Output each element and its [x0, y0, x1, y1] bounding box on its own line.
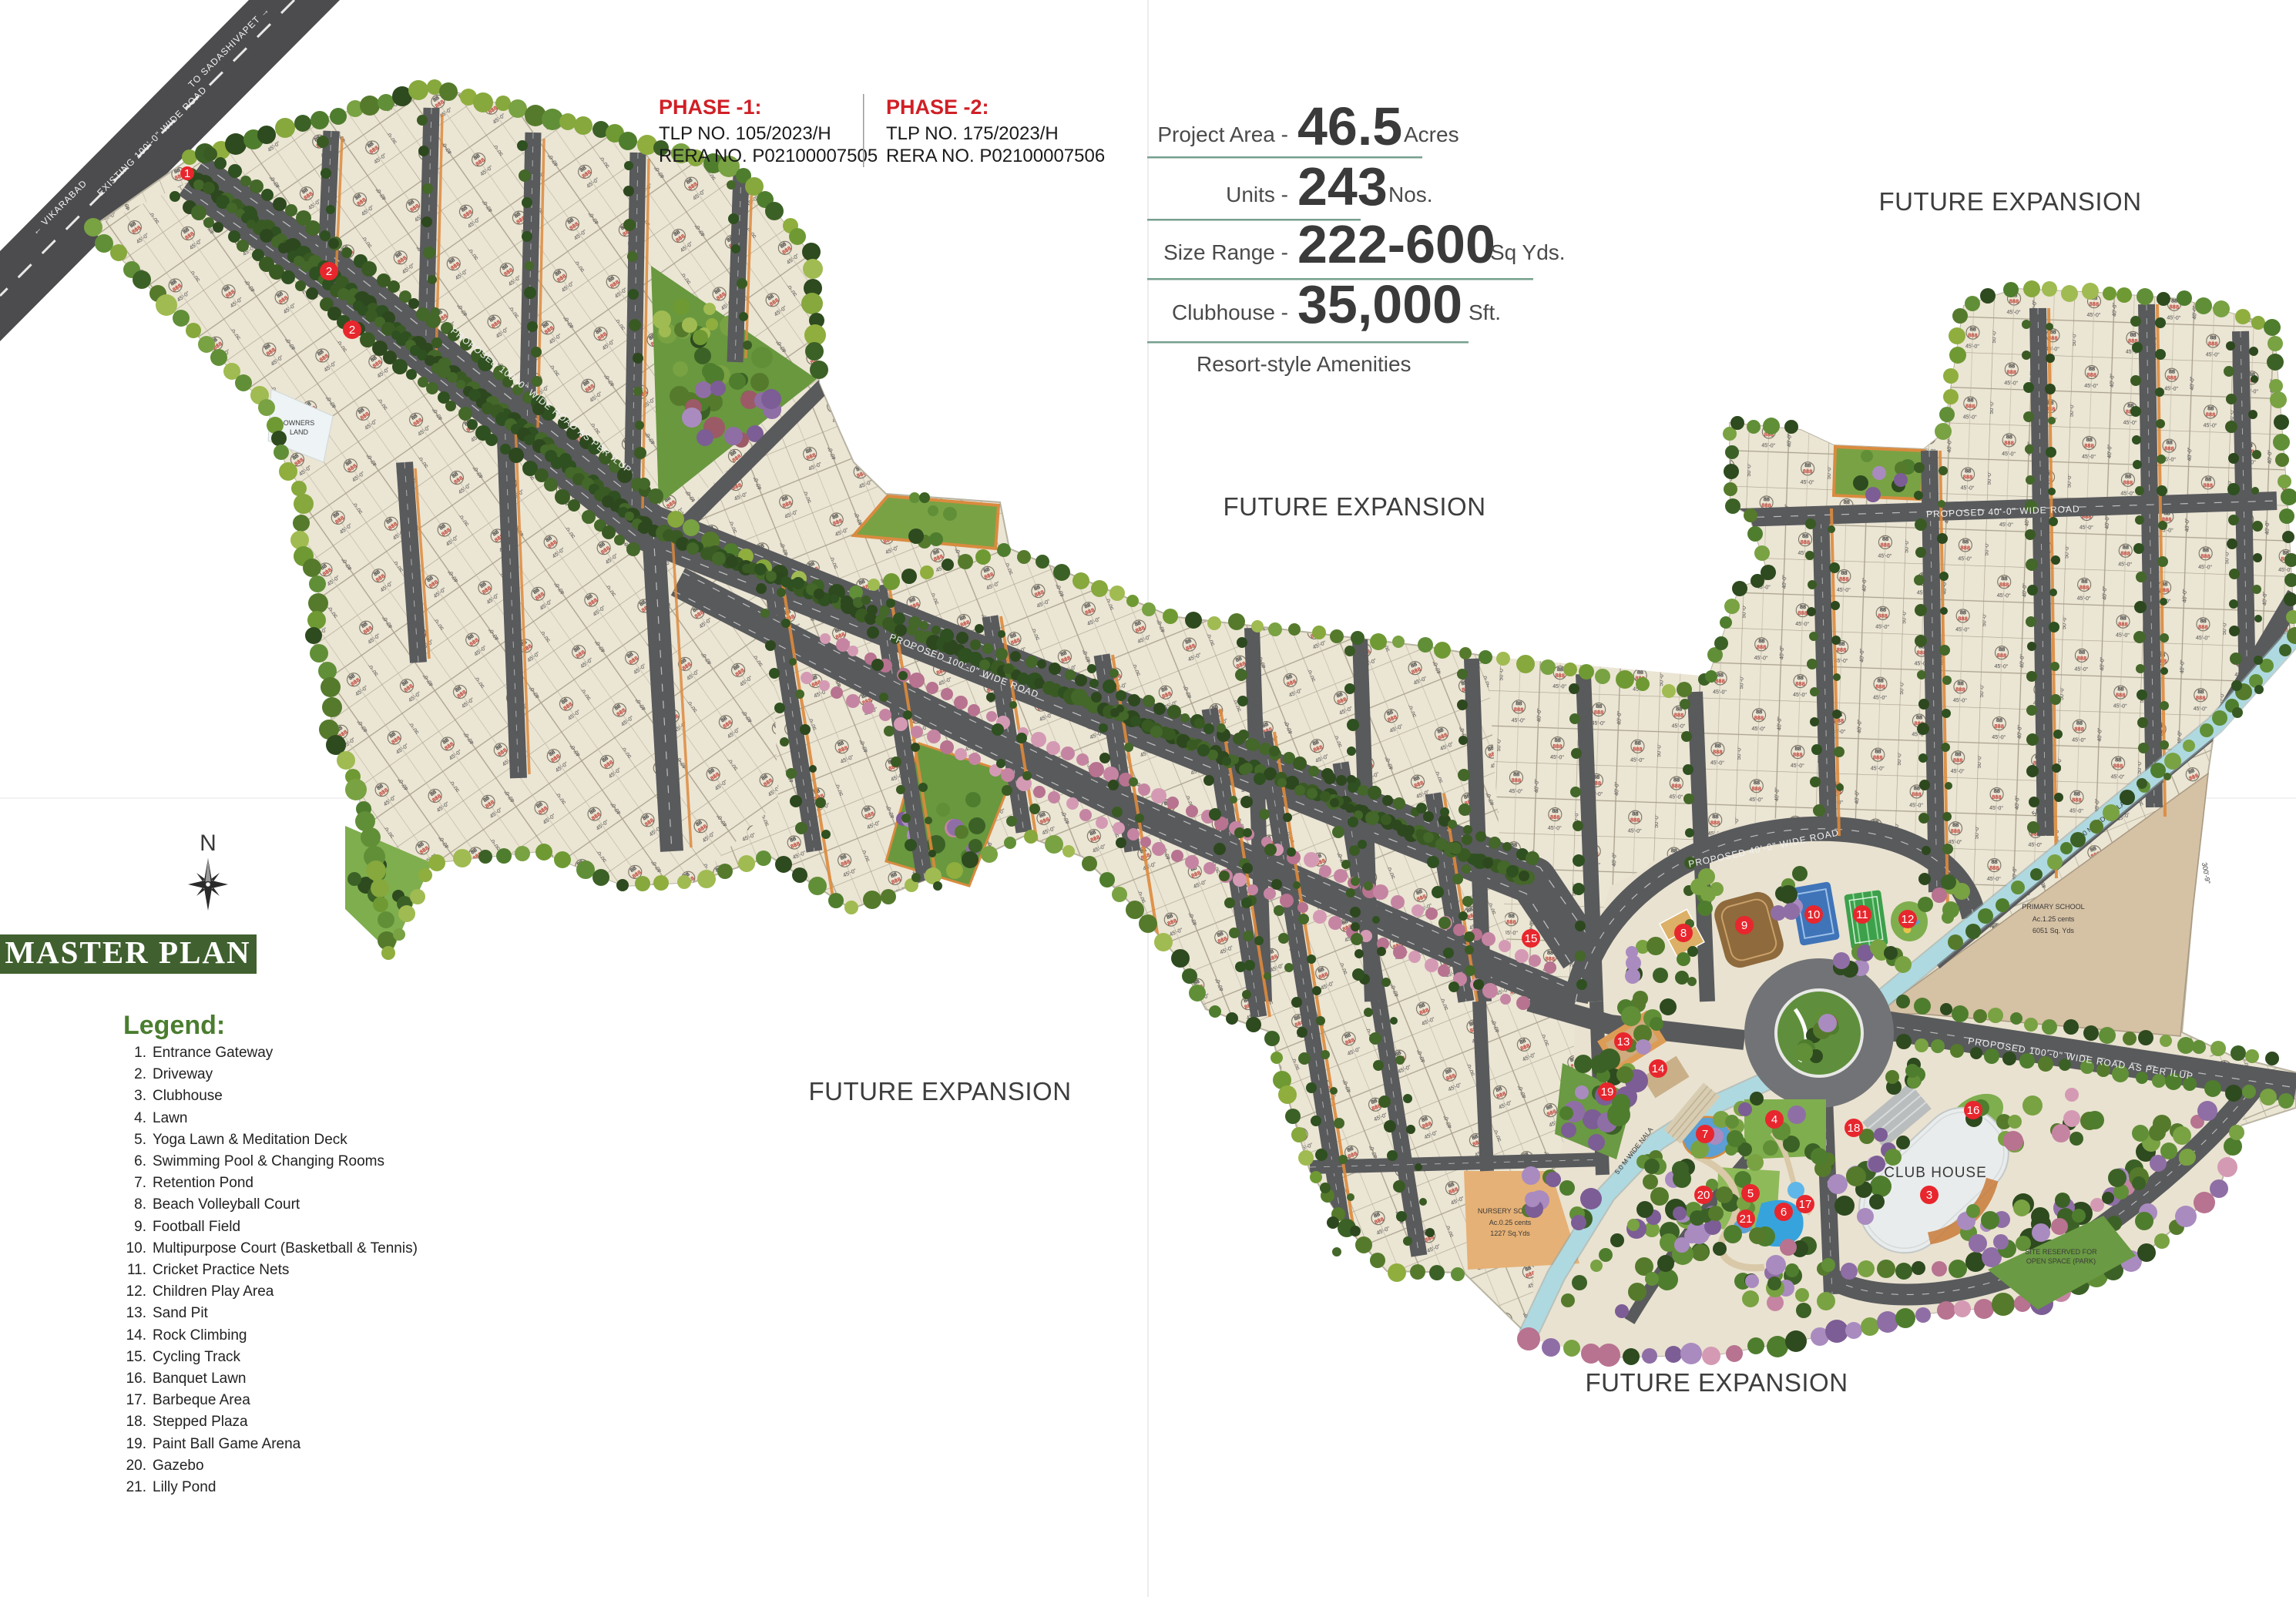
svg-text:Beach Volleyball Court: Beach Volleyball Court	[153, 1196, 300, 1213]
svg-text:18: 18	[1848, 1122, 1861, 1135]
svg-text:Project Area -: Project Area -	[1157, 122, 1288, 146]
svg-text:14: 14	[1652, 1062, 1665, 1075]
svg-text:Acres: Acres	[1404, 122, 1459, 146]
svg-text:Legend:: Legend:	[123, 1011, 225, 1040]
svg-text:1: 1	[184, 167, 190, 180]
svg-text:6: 6	[1781, 1206, 1787, 1219]
svg-text:FUTURE EXPANSION: FUTURE EXPANSION	[808, 1077, 1071, 1105]
svg-text:12.: 12.	[126, 1283, 146, 1300]
svg-text:10: 10	[1808, 908, 1821, 921]
svg-text:Gazebo: Gazebo	[153, 1458, 204, 1474]
svg-text:15: 15	[1525, 932, 1538, 945]
svg-text:TLP NO. 175/2023/H: TLP NO. 175/2023/H	[886, 123, 1059, 144]
svg-text:OPEN SPACE (PARK): OPEN SPACE (PARK)	[2026, 1257, 2096, 1265]
svg-text:15.: 15.	[126, 1349, 146, 1365]
svg-text:Retention Pond: Retention Pond	[153, 1175, 253, 1191]
svg-text:8: 8	[1680, 927, 1687, 940]
svg-text:243: 243	[1297, 156, 1388, 216]
svg-text:FUTURE EXPANSION: FUTURE EXPANSION	[1878, 187, 2141, 216]
svg-text:19.: 19.	[126, 1436, 146, 1452]
svg-text:17.: 17.	[126, 1392, 146, 1408]
svg-text:21.: 21.	[126, 1479, 146, 1495]
svg-text:Entrance Gateway: Entrance Gateway	[153, 1045, 274, 1061]
svg-text:RERA NO. P02100007506: RERA NO. P02100007506	[886, 146, 1105, 166]
svg-text:Sand Pit: Sand Pit	[153, 1305, 209, 1321]
svg-text:N: N	[200, 830, 217, 856]
svg-text:3: 3	[1926, 1189, 1932, 1202]
svg-text:Football Field: Football Field	[153, 1219, 240, 1235]
svg-text:Swimming Pool & Changing Rooms: Swimming Pool & Changing Rooms	[153, 1153, 384, 1169]
svg-text:Barbeque Area: Barbeque Area	[153, 1392, 250, 1408]
svg-text:Rock Climbing: Rock Climbing	[153, 1327, 247, 1344]
svg-text:Nos.: Nos.	[1388, 183, 1433, 206]
svg-text:2: 2	[326, 265, 332, 278]
svg-text:16.: 16.	[126, 1371, 146, 1387]
svg-text:CLUB HOUSE: CLUB HOUSE	[1884, 1165, 1987, 1181]
svg-text:Clubhouse: Clubhouse	[153, 1088, 223, 1104]
svg-text:SITE RESERVED FOR: SITE RESERVED FOR	[2025, 1248, 2097, 1256]
svg-text:RERA NO. P02100007505: RERA NO. P02100007505	[659, 146, 878, 166]
svg-text:222-600: 222-600	[1297, 214, 1495, 274]
svg-text:11: 11	[1856, 908, 1868, 921]
svg-text:Banquet Lawn: Banquet Lawn	[153, 1371, 247, 1387]
svg-text:46.5: 46.5	[1297, 96, 1402, 156]
svg-text:PHASE -2:: PHASE -2:	[886, 96, 989, 119]
svg-text:2.: 2.	[134, 1066, 146, 1082]
svg-text:9: 9	[1741, 919, 1747, 932]
svg-text:LAND: LAND	[290, 428, 309, 436]
svg-text:11.: 11.	[127, 1262, 146, 1278]
svg-text:Resort-style Amenities: Resort-style Amenities	[1197, 352, 1412, 376]
svg-text:16: 16	[1967, 1104, 1980, 1117]
svg-text:Cycling Track: Cycling Track	[153, 1349, 241, 1365]
svg-text:Clubhouse -: Clubhouse -	[1172, 300, 1288, 324]
svg-text:2: 2	[349, 324, 355, 337]
svg-text:7.: 7.	[134, 1175, 146, 1191]
svg-text:1227 Sq.Yds: 1227 Sq.Yds	[1490, 1230, 1530, 1237]
svg-text:9.: 9.	[134, 1219, 146, 1235]
svg-text:20: 20	[1697, 1189, 1710, 1202]
svg-text:Lawn: Lawn	[153, 1110, 187, 1126]
svg-text:35,000: 35,000	[1297, 274, 1462, 334]
svg-text:14.: 14.	[126, 1327, 146, 1344]
svg-text:7: 7	[1702, 1128, 1708, 1141]
svg-text:Lilly Pond: Lilly Pond	[153, 1479, 216, 1495]
svg-text:Size Range -: Size Range -	[1163, 240, 1288, 264]
svg-text:8.: 8.	[134, 1196, 146, 1213]
svg-text:Sft.: Sft.	[1469, 300, 1501, 324]
svg-text:5: 5	[1747, 1187, 1754, 1200]
svg-text:13.: 13.	[126, 1305, 146, 1321]
svg-text:3.: 3.	[134, 1088, 146, 1104]
svg-text:OWNERS: OWNERS	[284, 419, 315, 427]
svg-text:Sq Yds.: Sq Yds.	[1490, 240, 1566, 264]
svg-text:Driveway: Driveway	[153, 1066, 213, 1082]
svg-text:10.: 10.	[126, 1240, 146, 1256]
svg-text:Units -: Units -	[1226, 183, 1288, 206]
svg-text:21: 21	[1740, 1213, 1753, 1226]
svg-text:FUTURE EXPANSION: FUTURE EXPANSION	[1585, 1368, 1848, 1397]
svg-text:1.: 1.	[134, 1045, 146, 1061]
svg-text:PRIMARY SCHOOL: PRIMARY SCHOOL	[2022, 903, 2084, 911]
svg-text:18.: 18.	[126, 1414, 146, 1430]
svg-text:6051 Sq. Yds: 6051 Sq. Yds	[2032, 927, 2074, 934]
svg-text:TLP NO. 105/2023/H: TLP NO. 105/2023/H	[659, 123, 831, 144]
svg-text:20.: 20.	[126, 1458, 146, 1474]
svg-text:Ac.1.25 cents: Ac.1.25 cents	[2032, 915, 2075, 923]
svg-text:Ac.0.25 cents: Ac.0.25 cents	[1489, 1219, 1532, 1226]
svg-text:Yoga Lawn & Meditation Deck: Yoga Lawn & Meditation Deck	[153, 1132, 347, 1148]
svg-text:Multipurpose Court (Basketball: Multipurpose Court (Basketball & Tennis)	[153, 1240, 418, 1256]
svg-text:Paint Ball Game Arena: Paint Ball Game Arena	[153, 1436, 301, 1452]
svg-text:5.: 5.	[134, 1132, 146, 1148]
svg-text:PHASE -1:: PHASE -1:	[659, 96, 762, 119]
svg-text:13: 13	[1617, 1035, 1630, 1048]
svg-text:4: 4	[1771, 1113, 1777, 1126]
svg-text:Children Play Area: Children Play Area	[153, 1283, 274, 1300]
svg-text:4.: 4.	[134, 1110, 146, 1126]
svg-text:12: 12	[1902, 913, 1915, 926]
svg-text:6.: 6.	[134, 1153, 146, 1169]
svg-text:FUTURE EXPANSION: FUTURE EXPANSION	[1223, 492, 1485, 521]
svg-text:Cricket Practice Nets: Cricket Practice Nets	[153, 1262, 289, 1278]
svg-text:17: 17	[1799, 1198, 1812, 1211]
svg-text:MASTER PLAN: MASTER PLAN	[5, 934, 250, 970]
svg-text:Stepped Plaza: Stepped Plaza	[153, 1414, 248, 1430]
svg-text:19: 19	[1601, 1085, 1614, 1099]
